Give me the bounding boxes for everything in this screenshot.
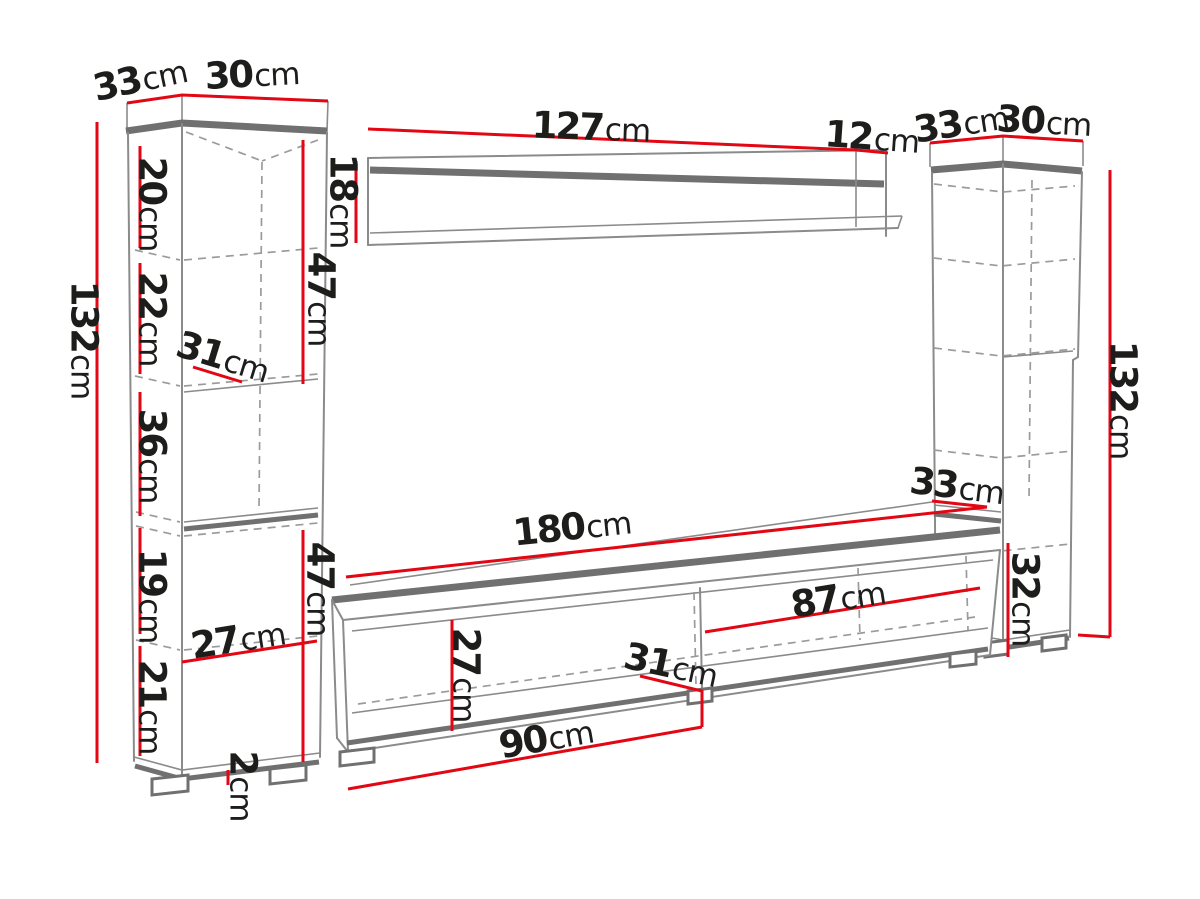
dim-left-cabinet-height: 132cm — [66, 281, 103, 399]
dim-wall-shelf-height: 18cm — [325, 154, 362, 249]
dim-left-cabinet-width: 30cm — [204, 53, 301, 95]
dim-tv-stand-inner-height: 27cm — [448, 628, 485, 723]
dim-left-cabinet-lower-section: 47cm — [302, 542, 339, 637]
furniture-dimension-diagram: 33cm 30cm 132cm 20cm 22cm 47cm 31cm 36cm… — [0, 0, 1200, 899]
dim-wall-shelf-width: 127cm — [531, 106, 651, 147]
dim-left-cabinet-shelf-top: 20cm — [134, 157, 171, 252]
dim-right-cabinet-bottom-section: 32cm — [1007, 552, 1044, 647]
wall-shelf-drawing — [368, 150, 902, 245]
dim-left-cabinet-foot-height: 2cm — [225, 751, 262, 822]
dim-left-cabinet-upper-section: 47cm — [303, 252, 340, 347]
dim-left-cabinet-shelf-second: 22cm — [134, 272, 171, 367]
dim-left-cabinet-shelf-fourth: 19cm — [134, 549, 171, 644]
dim-left-cabinet-shelf-bottom: 21cm — [134, 660, 171, 755]
dim-right-cabinet-height: 132cm — [1105, 341, 1142, 459]
dim-right-cabinet-width: 30cm — [996, 100, 1093, 142]
dim-left-cabinet-open-niche: 36cm — [134, 409, 171, 504]
dim-wall-shelf-depth: 12cm — [823, 115, 920, 159]
